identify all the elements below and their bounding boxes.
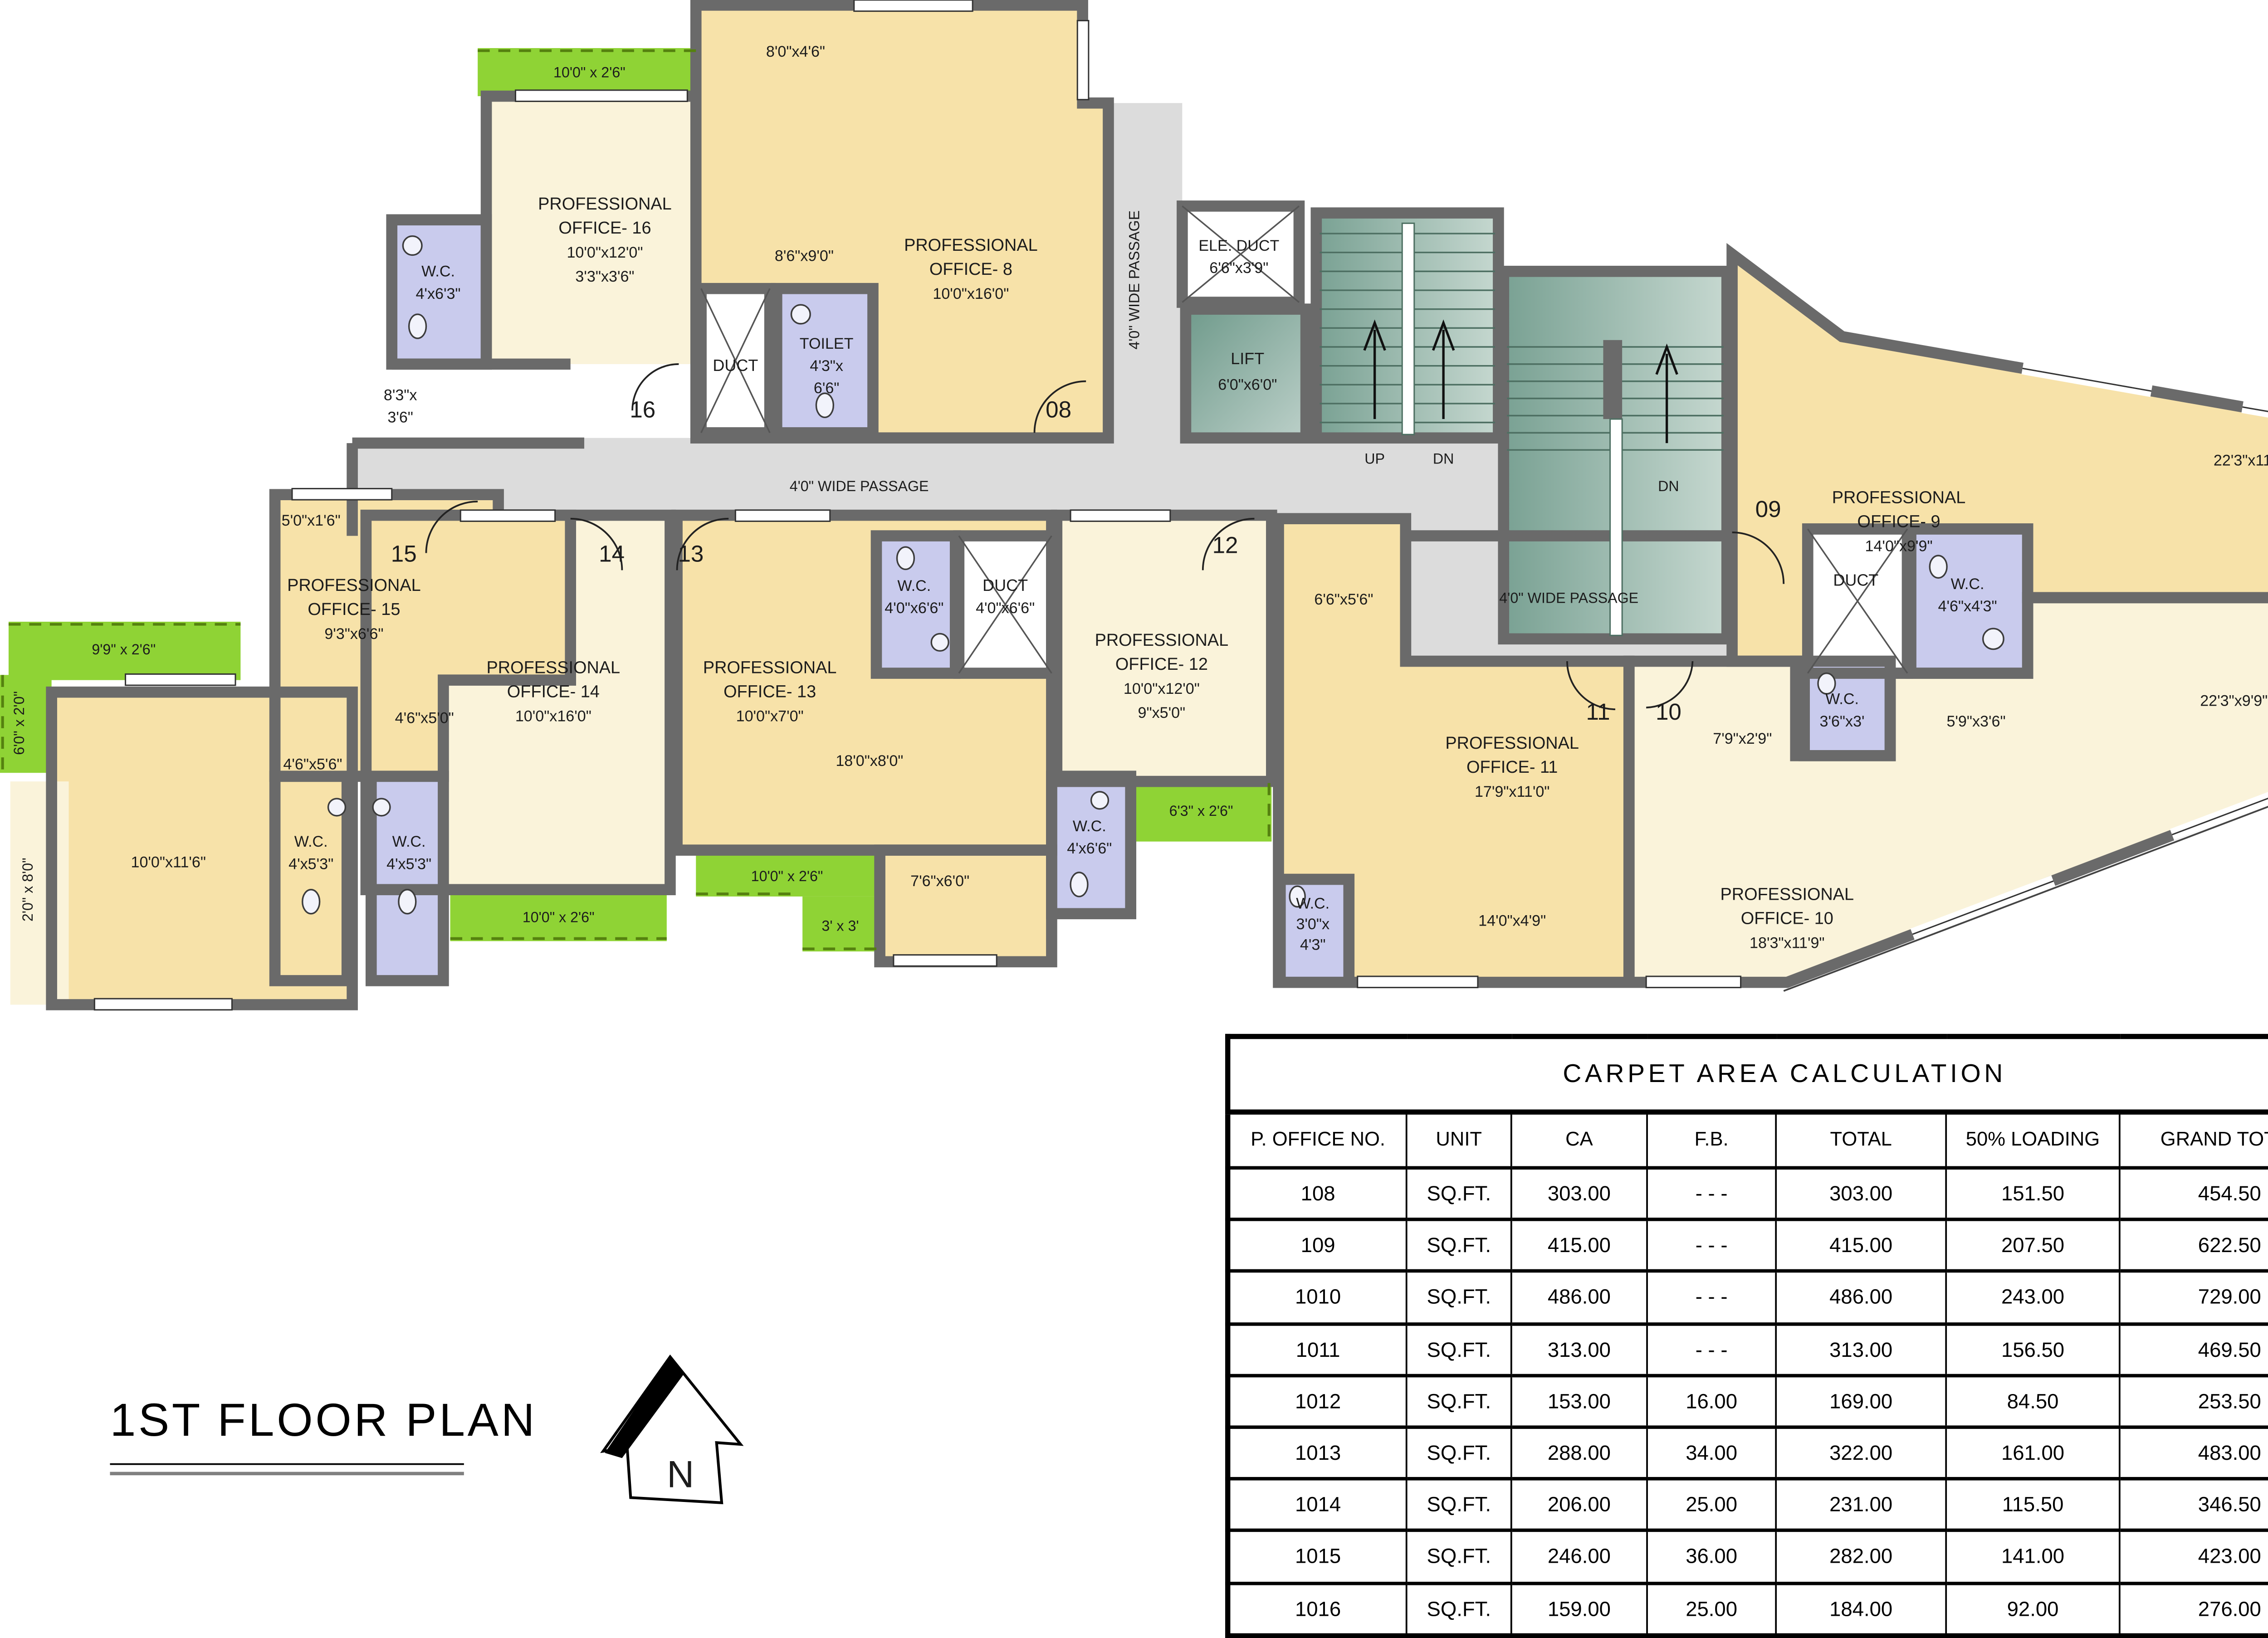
wc9-name: W.C. xyxy=(1951,575,1984,593)
balcony15-label: 9'9" x 2'6" xyxy=(92,641,156,658)
cell: 207.50 xyxy=(1946,1220,2120,1272)
cell: 151.50 xyxy=(1946,1168,2120,1219)
office14-sub1: 4'6"x5'0" xyxy=(395,709,454,726)
wc13-dim: 4'0"x6'6" xyxy=(885,600,943,617)
cell: SQ.FT. xyxy=(1407,1168,1511,1219)
wc11-dim1: 3'0"x xyxy=(1296,916,1330,933)
office12-dim2: 9"x5'0" xyxy=(1138,704,1186,721)
toilet8-name: TOILET xyxy=(800,335,854,352)
cell: 622.50 xyxy=(2120,1220,2268,1272)
office14-name2: OFFICE- 14 xyxy=(507,682,600,702)
stair1-divider xyxy=(1402,223,1414,434)
toilet8-dim1: 4'3"x xyxy=(810,357,843,375)
duct13-dim: 4'0"x6'6" xyxy=(976,600,1035,617)
table-row: 1016SQ.FT.159.0025.00184.0092.00276.00- … xyxy=(1228,1583,2268,1635)
wc11-name: W.C. xyxy=(1296,895,1330,912)
col-header-unit: UNIT xyxy=(1407,1112,1511,1168)
cell: 108 xyxy=(1228,1168,1407,1219)
office13-sub1: 18'0"x8'0" xyxy=(836,752,903,770)
sink-icon xyxy=(1983,629,2004,649)
office9-dim: 14'0"x9'9" xyxy=(1865,538,1933,555)
sink-icon xyxy=(328,799,346,816)
cell: 486.00 xyxy=(1776,1272,1946,1323)
office8-sub2: 8'6"x9'0" xyxy=(775,248,834,265)
cell: 303.00 xyxy=(1511,1168,1647,1219)
table-row: 1011SQ.FT.313.00- - -313.00156.50469.50-… xyxy=(1228,1323,2268,1375)
passage-label-main: 4'0" WIDE PASSAGE xyxy=(790,478,929,494)
toilet-icon xyxy=(399,890,416,914)
office15-dim: 9'3"x6'6" xyxy=(324,625,383,643)
cell: 1010 xyxy=(1228,1272,1407,1323)
toilet8-dim2: 6'6" xyxy=(814,380,840,397)
cell: 423.00 xyxy=(2120,1531,2268,1583)
wc10-name: W.C. xyxy=(1825,691,1859,708)
office15-name2: OFFICE- 15 xyxy=(308,600,400,619)
wc15b-dim: 4'x5'3" xyxy=(386,855,431,873)
col-header-fb: F.B. xyxy=(1647,1112,1776,1168)
up-label: UP xyxy=(1364,451,1385,467)
office16-dim: 10'0"x12'0" xyxy=(567,244,643,261)
door-number-13: 13 xyxy=(678,541,704,566)
col-header-office-no: P. OFFICE NO. xyxy=(1228,1112,1407,1168)
cell: 346.50 xyxy=(2120,1479,2268,1531)
office10-sub2: 5'9"x3'6" xyxy=(1946,713,2005,730)
door-number-12: 12 xyxy=(1212,532,1238,558)
wc16-name: W.C. xyxy=(421,263,455,280)
col-header-loading: 50% LOADING xyxy=(1946,1112,2120,1168)
office16-sub1: 8'3"x xyxy=(384,386,417,404)
office12-name2: OFFICE- 12 xyxy=(1115,655,1208,674)
cell: 25.00 xyxy=(1647,1583,1776,1635)
office10-name2: OFFICE- 10 xyxy=(1741,909,1833,928)
office16-sub2: 3'6" xyxy=(387,409,413,426)
toilet-icon xyxy=(303,890,320,914)
cell: 16.00 xyxy=(1647,1375,1776,1427)
table-title: CARPET AREA CALCULATION xyxy=(1228,1037,2268,1112)
office12-name1: PROFESSIONAL xyxy=(1095,631,1229,650)
dn2-label: DN xyxy=(1658,478,1679,494)
cell: 115.50 xyxy=(1946,1479,2120,1531)
balcony14-label: 10'0" x 2'6" xyxy=(523,909,595,926)
cell: 486.00 xyxy=(1511,1272,1647,1323)
office14-name1: PROFESSIONAL xyxy=(487,658,621,678)
table-row: 1013SQ.FT.288.0034.00322.00161.00483.00-… xyxy=(1228,1427,2268,1479)
title-underline-2 xyxy=(110,1472,464,1476)
toilet-icon xyxy=(1070,873,1088,897)
cell: SQ.FT. xyxy=(1407,1272,1511,1323)
balcony13s-label: 3' x 3' xyxy=(821,918,859,934)
cell: 288.00 xyxy=(1511,1427,1647,1479)
duct9-label: DUCT xyxy=(1833,570,1878,589)
wc12-dim: 4'x6'6" xyxy=(1067,840,1112,857)
office12-dim: 10'0"x12'0" xyxy=(1124,680,1200,697)
cell: 92.00 xyxy=(1946,1583,2120,1635)
door-number-16: 16 xyxy=(630,396,655,422)
sink-icon xyxy=(791,305,810,324)
office16-name1: PROFESSIONAL xyxy=(538,195,672,214)
door-number-14: 14 xyxy=(599,541,625,566)
office8-name2: OFFICE- 8 xyxy=(929,260,1012,279)
duct13-name: DUCT xyxy=(982,576,1028,595)
cell: 313.00 xyxy=(1776,1323,1946,1375)
office15-sub1: 5'0"x1'6" xyxy=(282,512,341,529)
ele-duct-name: ELE. DUCT xyxy=(1198,237,1279,254)
wc15b-name: W.C. xyxy=(392,833,426,850)
col-header-grand-total: GRAND TOTAL xyxy=(2120,1112,2268,1168)
cell: 1012 xyxy=(1228,1375,1407,1427)
office8-name1: PROFESSIONAL xyxy=(904,236,1038,255)
wc9-dim: 4'6"x4'3" xyxy=(1938,598,1997,615)
cell: 243.00 xyxy=(1946,1272,2120,1323)
office13-dim: 10'0"x7'0" xyxy=(736,708,804,725)
wc11-dim2: 4'3" xyxy=(1300,936,1326,953)
stair2-stub-wall xyxy=(1603,340,1622,419)
wc10-dim: 3'6"x3' xyxy=(1820,713,1865,730)
office11-name1: PROFESSIONAL xyxy=(1445,734,1579,753)
col-header-total: TOTAL xyxy=(1776,1112,1946,1168)
cell: 282.00 xyxy=(1776,1531,1946,1583)
cell: 1015 xyxy=(1228,1531,1407,1583)
office9-name2: OFFICE- 9 xyxy=(1857,512,1941,531)
cell: 1016 xyxy=(1228,1583,1407,1635)
office10-sub3: 22'3"x9'9" xyxy=(2200,692,2268,710)
office13-name1: PROFESSIONAL xyxy=(703,658,837,678)
office8-dim: 10'0"x16'0" xyxy=(933,285,1009,302)
cell: 469.50 xyxy=(2120,1323,2268,1375)
wc15a-dim: 4'x5'3" xyxy=(288,855,333,873)
cell: 303.00 xyxy=(1776,1168,1946,1219)
cell: 415.00 xyxy=(1776,1220,1946,1272)
cell: 454.50 xyxy=(2120,1168,2268,1219)
north-arrow-icon: N xyxy=(603,1357,741,1503)
cell: 153.00 xyxy=(1511,1375,1647,1427)
table-row: 108SQ.FT.303.00- - -303.00151.50454.50- … xyxy=(1228,1168,2268,1219)
door-number-10: 10 xyxy=(1656,699,1681,725)
carpet-area-table: CARPET AREA CALCULATION P. OFFICE NO. UN… xyxy=(1225,1034,2268,1638)
room-office13-ext xyxy=(880,850,1052,962)
table-row: 1012SQ.FT.153.0016.00169.0084.50253.50- … xyxy=(1228,1375,2268,1427)
cell: 141.00 xyxy=(1946,1531,2120,1583)
office15-sub4: 2'0" x 8'0" xyxy=(20,858,36,921)
office11-dim: 17'9"x11'0" xyxy=(1475,783,1549,800)
office13-name2: OFFICE- 13 xyxy=(723,682,816,702)
cell: SQ.FT. xyxy=(1407,1375,1511,1427)
page-title: 1ST FLOOR PLAN xyxy=(110,1394,537,1448)
office16-name2: OFFICE- 16 xyxy=(558,219,651,238)
cell: 313.00 xyxy=(1511,1323,1647,1375)
office15-sub5: 6'0" x 2'0" xyxy=(11,691,27,755)
cell: SQ.FT. xyxy=(1407,1323,1511,1375)
cell: 159.00 xyxy=(1511,1583,1647,1635)
title-underline-1 xyxy=(110,1463,464,1465)
office10-name1: PROFESSIONAL xyxy=(1721,885,1854,904)
cell: SQ.FT. xyxy=(1407,1583,1511,1635)
office14-dim: 10'0"x16'0" xyxy=(515,708,591,725)
table-row: 1015SQ.FT.246.0036.00282.00141.00423.00-… xyxy=(1228,1531,2268,1583)
floor-plan-sheet: 4'0" WIDE PASSAGE 4'0" WIDE PASSAGE 4'0"… xyxy=(0,0,2268,1630)
cell: 161.00 xyxy=(1946,1427,2120,1479)
office15-sub2: 4'6"x5'6" xyxy=(283,756,342,773)
cell: SQ.FT. xyxy=(1407,1220,1511,1272)
table-row: 1014SQ.FT.206.0025.00231.00115.50346.50-… xyxy=(1228,1479,2268,1531)
cell: 231.00 xyxy=(1776,1479,1946,1531)
toilet-icon xyxy=(1930,556,1947,578)
cell: 109 xyxy=(1228,1220,1407,1272)
cell: 25.00 xyxy=(1647,1479,1776,1531)
dn1-label: DN xyxy=(1433,451,1454,467)
balcony12-label: 6'3" x 2'6" xyxy=(1169,803,1233,819)
door-number-09: 09 xyxy=(1755,496,1781,522)
passage-label-east: 4'0" WIDE PASSAGE xyxy=(1499,590,1638,606)
cell: SQ.FT. xyxy=(1407,1427,1511,1479)
toilet-icon xyxy=(897,547,914,569)
cell: 1011 xyxy=(1228,1323,1407,1375)
title-block: 1ST FLOOR PLAN xyxy=(110,1394,537,1475)
cell: - - - xyxy=(1647,1272,1776,1323)
office11-sub1: 6'6"x5'6" xyxy=(1314,591,1373,608)
cell: 36.00 xyxy=(1647,1531,1776,1583)
duct8-label: DUCT xyxy=(713,356,758,375)
office10-sub1: 7'9"x2'9" xyxy=(1713,730,1772,747)
wc15a-name: W.C. xyxy=(294,833,328,850)
cell: 156.50 xyxy=(1946,1323,2120,1375)
office8-sub1: 8'0"x4'6" xyxy=(766,43,825,60)
passage-label-vert: 4'0" WIDE PASSAGE xyxy=(1126,210,1143,350)
balcony13-label: 10'0" x 2'6" xyxy=(751,868,823,884)
lift-dim: 6'0"x6'0" xyxy=(1218,376,1277,394)
sink-icon xyxy=(931,634,948,651)
office9-sub1: 22'3"x11'6" xyxy=(2214,452,2268,469)
cell: 184.00 xyxy=(1776,1583,1946,1635)
cell: SQ.FT. xyxy=(1407,1479,1511,1531)
cell: 1014 xyxy=(1228,1479,1407,1531)
lift-name: LIFT xyxy=(1231,349,1264,368)
office11-sub2: 14'0"x4'9" xyxy=(1478,912,1546,929)
office11-name2: OFFICE- 11 xyxy=(1466,758,1558,777)
cell: 729.00 xyxy=(2120,1272,2268,1323)
office13-sub2: 7'6"x6'0" xyxy=(910,873,969,890)
cell: 322.00 xyxy=(1776,1427,1946,1479)
table-row: 109SQ.FT.415.00- - -415.00207.50622.50- … xyxy=(1228,1220,2268,1272)
door-number-15: 15 xyxy=(391,541,417,566)
cell: 276.00 xyxy=(2120,1583,2268,1635)
col-header-ca: CA xyxy=(1511,1112,1647,1168)
office10-dim: 18'3"x11'9" xyxy=(1750,935,1824,952)
wc12-name: W.C. xyxy=(1073,818,1106,835)
cell: 246.00 xyxy=(1511,1531,1647,1583)
cell: 34.00 xyxy=(1647,1427,1776,1479)
cell: - - - xyxy=(1647,1323,1776,1375)
wc16-dim: 4'x6'3" xyxy=(415,285,460,302)
table-header-row: P. OFFICE NO. UNIT CA F.B. TOTAL 50% LOA… xyxy=(1228,1112,2268,1168)
sink-icon xyxy=(403,236,422,255)
door-number-08: 08 xyxy=(1046,396,1071,422)
balcony16-label: 10'0" x 2'6" xyxy=(553,64,626,80)
table-row: 1010SQ.FT.486.00- - -486.00243.00729.002… xyxy=(1228,1272,2268,1323)
cell: - - - xyxy=(1647,1220,1776,1272)
office15-name1: PROFESSIONAL xyxy=(287,576,421,595)
office9-name1: PROFESSIONAL xyxy=(1832,488,1966,507)
door-number-11: 11 xyxy=(1586,699,1610,725)
cell: 206.00 xyxy=(1511,1479,1647,1531)
office15-sub3: 10'0"x11'6" xyxy=(131,854,206,871)
wc13-name: W.C. xyxy=(897,577,931,595)
sink-icon xyxy=(373,799,390,816)
cell: 483.00 xyxy=(2120,1427,2268,1479)
ele-duct-dim: 6'6"x3'9" xyxy=(1209,259,1268,277)
cell: SQ.FT. xyxy=(1407,1531,1511,1583)
cell: 1013 xyxy=(1228,1427,1407,1479)
sink-icon xyxy=(1091,792,1109,809)
cell: 253.50 xyxy=(2120,1375,2268,1427)
cell: 169.00 xyxy=(1776,1375,1946,1427)
cell: - - - xyxy=(1647,1168,1776,1219)
cell: 415.00 xyxy=(1511,1220,1647,1272)
cell: 84.50 xyxy=(1946,1375,2120,1427)
toilet-icon xyxy=(409,314,426,338)
north-letter: N xyxy=(667,1453,694,1496)
office16-dim2: 3'3"x3'6" xyxy=(575,268,634,285)
room-lift xyxy=(1186,309,1306,438)
